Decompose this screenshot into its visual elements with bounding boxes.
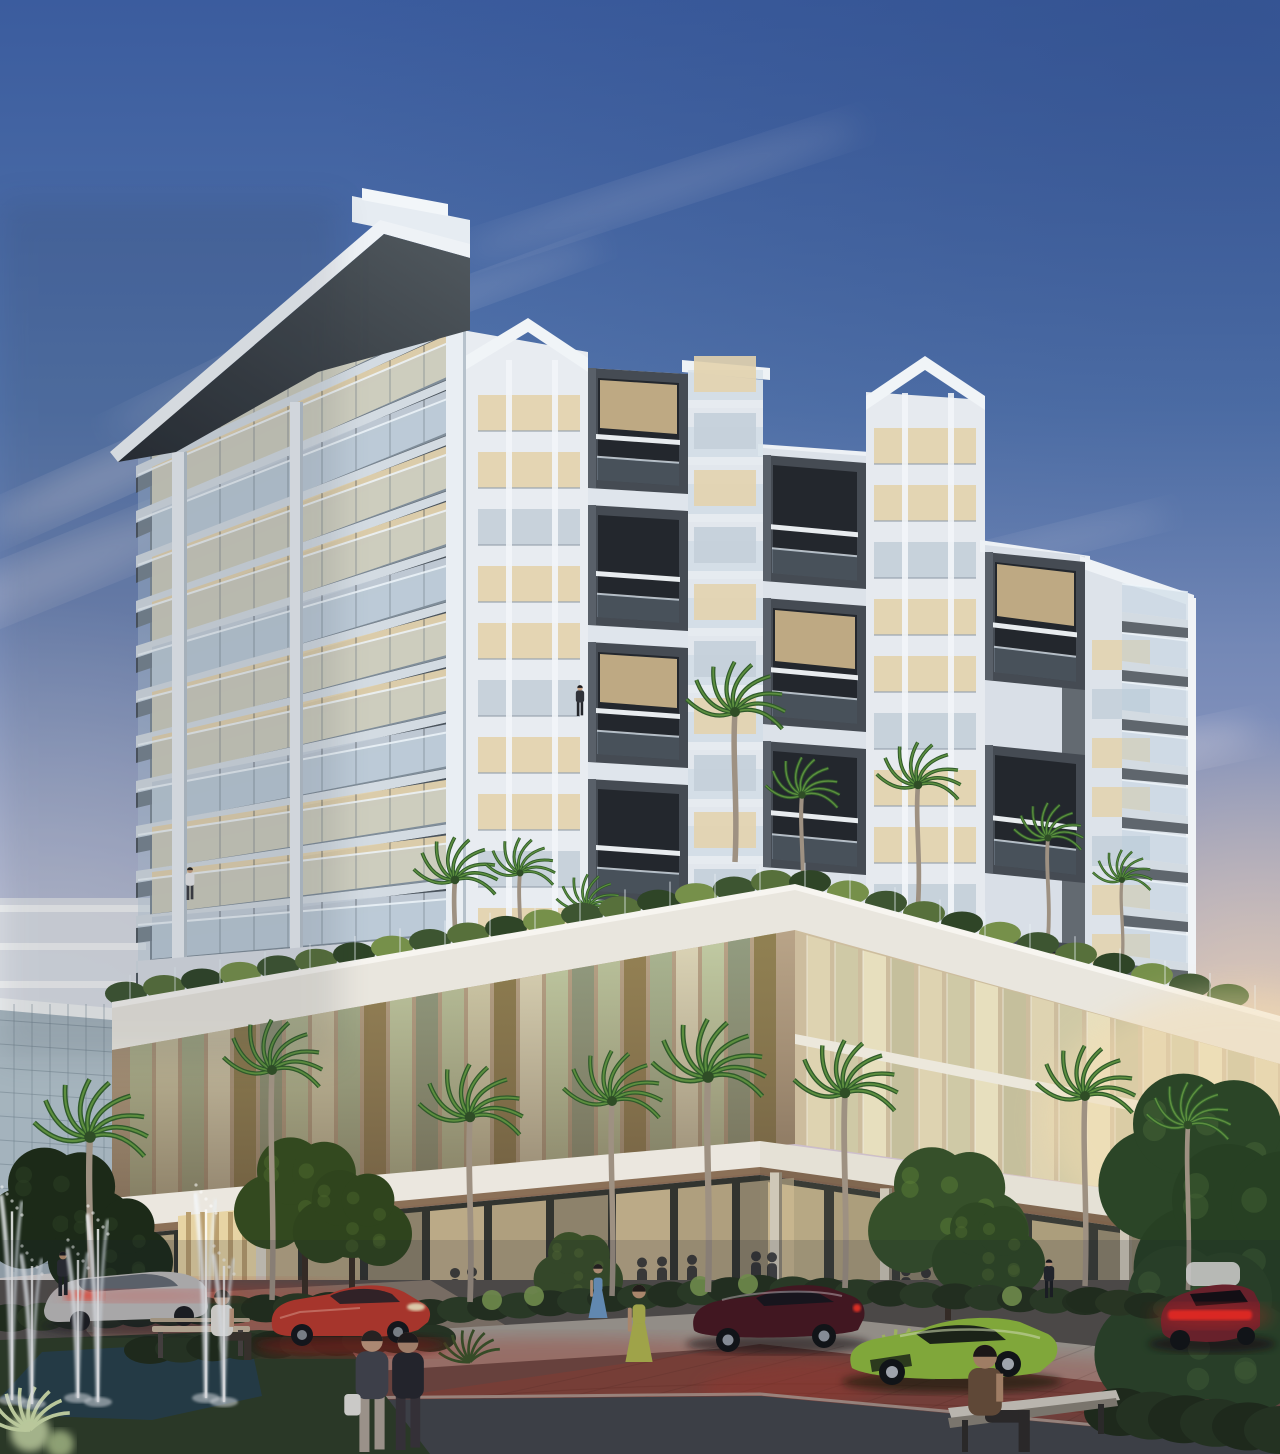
scene-shape: [91, 1211, 94, 1214]
palm-crown-core: [730, 707, 740, 717]
window: [478, 452, 580, 488]
scene-shape: [214, 1211, 217, 1214]
window: [694, 527, 756, 563]
window: [874, 542, 976, 578]
palm-trunk: [1047, 838, 1049, 938]
scene-shape: [209, 1204, 212, 1207]
scene-shape: [101, 1225, 104, 1228]
frame-edge: [588, 368, 596, 488]
window: [874, 656, 976, 692]
lit-interior: [775, 610, 855, 669]
window: [694, 812, 756, 848]
scene-shape: [581, 701, 584, 715]
window: [874, 485, 976, 521]
lit-interior: [997, 564, 1074, 626]
window: [694, 413, 756, 449]
white-fin: [948, 393, 954, 936]
window: [874, 428, 976, 464]
mini-slab: [688, 514, 763, 522]
window: [478, 794, 580, 830]
palm-crown-core: [702, 1071, 714, 1083]
palm-crown-core: [517, 870, 524, 877]
scene-shape: [576, 690, 584, 702]
leaf-highlight: [941, 1176, 958, 1193]
lit-interior: [600, 654, 677, 708]
palm-crown-core: [267, 1065, 277, 1075]
window: [694, 584, 756, 620]
palm-crown-core: [914, 781, 923, 790]
window: [874, 599, 976, 635]
scene-shape: [204, 1197, 207, 1200]
palm-crown-core: [607, 1096, 617, 1106]
scene-shape: [194, 1183, 197, 1186]
leaf-highlight: [346, 1222, 359, 1235]
leaf-highlight: [15, 1180, 32, 1197]
scene-shape: [577, 701, 580, 716]
window: [478, 737, 580, 773]
leaf-highlight: [983, 1223, 995, 1235]
window: [478, 395, 580, 431]
mini-slab: [688, 799, 763, 807]
palm-trunk: [734, 712, 736, 862]
scene-canvas: [0, 0, 1280, 1454]
palm-crown-core: [1045, 835, 1052, 842]
architectural-rendering: [0, 0, 1280, 1454]
leaf-highlight: [299, 1163, 314, 1178]
palm-crown-core: [798, 791, 806, 799]
frame-edge: [588, 505, 596, 625]
scene-shape: [96, 1218, 99, 1221]
scene-shape: [86, 1204, 89, 1207]
window: [874, 827, 976, 863]
dusk-overlay: [0, 1240, 1280, 1454]
scene-shape: [0, 1185, 3, 1188]
palm-crown-core: [84, 1131, 96, 1143]
leaf-highlight: [347, 1192, 360, 1205]
mini-slab: [688, 571, 763, 579]
mini-slab: [688, 856, 763, 864]
palm-crown-core: [840, 1088, 851, 1099]
mini-slab: [688, 457, 763, 465]
window: [478, 680, 580, 716]
column-shade: [463, 330, 466, 1000]
scene-shape: [15, 1206, 18, 1209]
mini-slab: [688, 628, 763, 636]
leaf-highlight: [373, 1208, 386, 1221]
palm-crown-core: [451, 876, 460, 885]
white-fin: [902, 393, 908, 936]
window: [694, 470, 756, 506]
leaf-highlight: [901, 1181, 918, 1198]
scene-shape: [10, 1199, 13, 1202]
window: [478, 566, 580, 602]
leaf-highlight: [955, 1226, 967, 1238]
window: [694, 356, 756, 392]
palm-crown-core: [1119, 877, 1125, 883]
window: [874, 713, 976, 749]
frame-edge: [985, 745, 993, 873]
frame-edge: [588, 642, 596, 762]
palm-crown-core: [1080, 1091, 1090, 1101]
frame-edge: [763, 455, 771, 581]
window: [478, 623, 580, 659]
palm-trunk: [1121, 880, 1123, 965]
lit-interior: [600, 380, 677, 434]
frame-edge: [763, 741, 771, 867]
leaf-highlight: [53, 1176, 70, 1193]
mini-slab: [688, 742, 763, 750]
tower-shade: [0, 200, 340, 1060]
palm-crown-core: [1184, 1121, 1193, 1130]
scene-shape: [20, 1213, 23, 1216]
leaf-highlight: [317, 1195, 330, 1208]
window: [478, 509, 580, 545]
scene-shape: [106, 1232, 109, 1235]
palm-crown-core: [465, 1112, 476, 1123]
window: [694, 755, 756, 791]
leaf-highlight: [1241, 1187, 1267, 1213]
scene-shape: [199, 1190, 202, 1193]
frame-edge: [985, 552, 993, 680]
palm-trunk: [917, 785, 919, 905]
scene-shape: [5, 1192, 8, 1195]
mini-slab: [688, 400, 763, 408]
leaf-highlight: [52, 1215, 69, 1232]
leaf-highlight: [74, 1221, 87, 1234]
